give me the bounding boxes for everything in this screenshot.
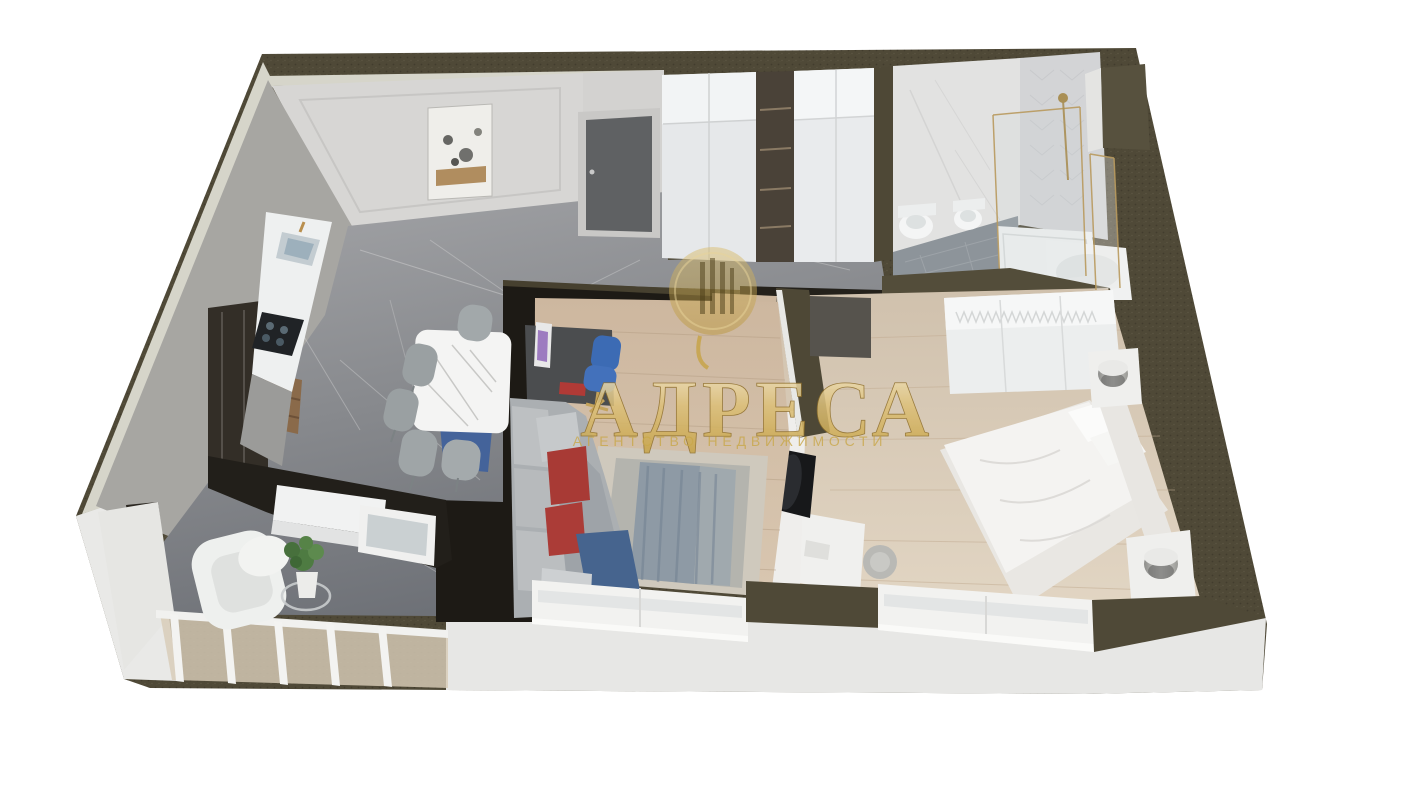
svg-text:АГЕНТСТВО НЕДВИЖИМОСТИ: АГЕНТСТВО НЕДВИЖИМОСТИ xyxy=(573,433,888,449)
